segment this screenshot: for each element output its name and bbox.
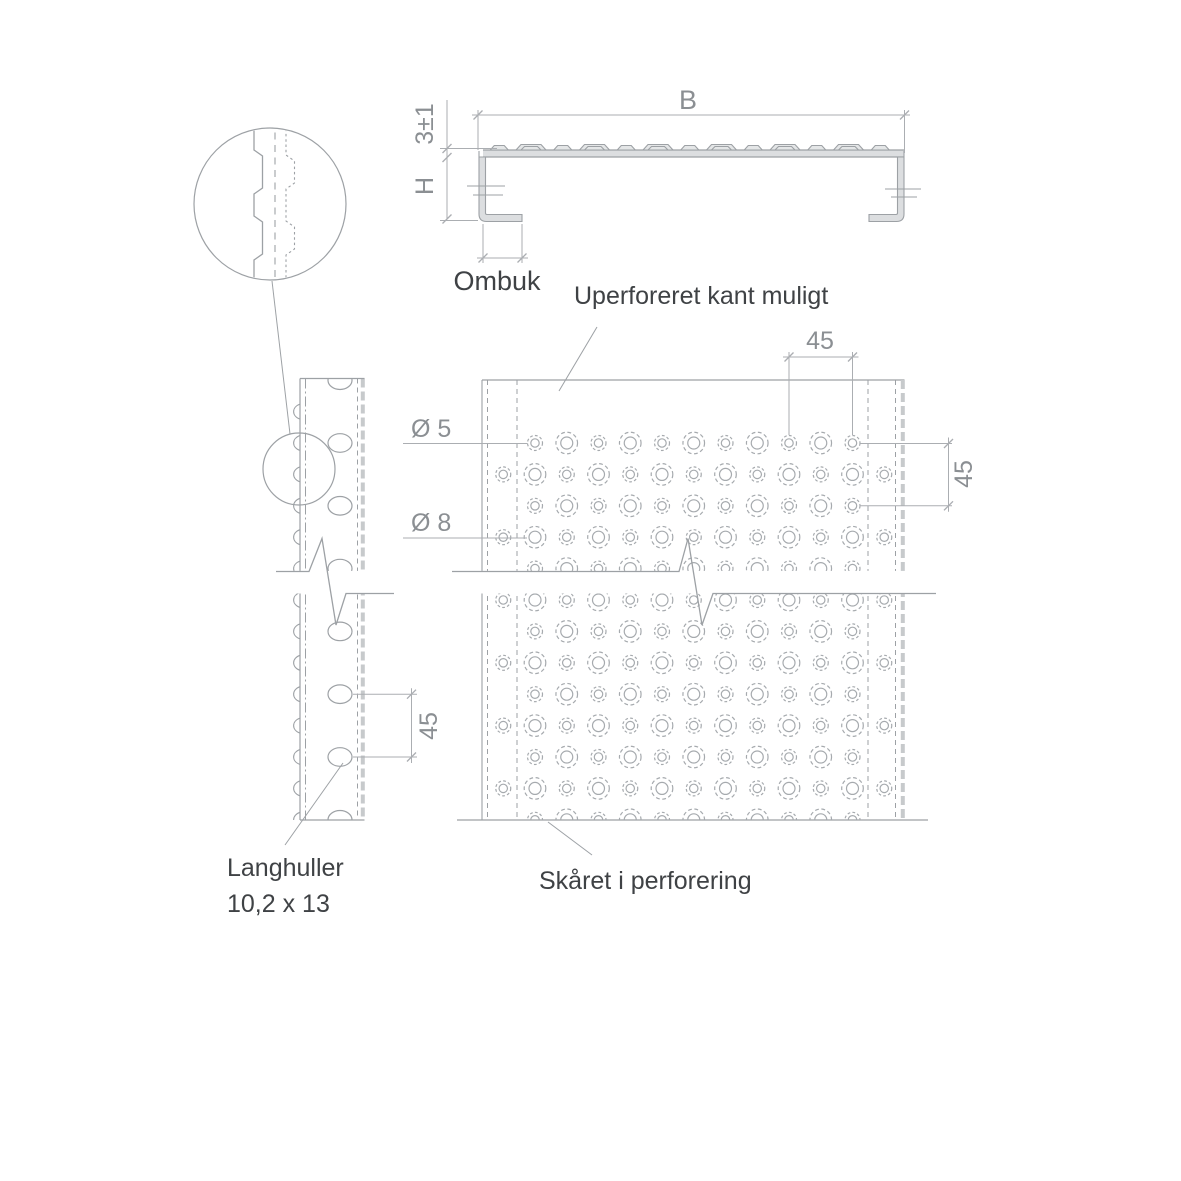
hole-small-ring [750, 530, 765, 545]
section-small-bump [681, 146, 699, 151]
hole-small-ring [591, 498, 606, 513]
hole-large [656, 531, 668, 543]
hole-small [753, 784, 761, 792]
detail-dotted-contour [286, 118, 295, 292]
hole-large [688, 751, 700, 763]
hole-small-ring [496, 530, 511, 545]
hole-large [593, 468, 605, 480]
hole-small-ring [750, 718, 765, 733]
strip-edge-bump [294, 718, 300, 733]
perforation-detail-view [194, 118, 346, 505]
hole-small-ring [782, 687, 797, 702]
hole-small-ring [813, 467, 828, 482]
hole-small-ring [623, 530, 638, 545]
section-hat-bump [707, 145, 737, 151]
hole-large-ring [619, 621, 641, 643]
hole-small [658, 502, 666, 510]
hole-small-ring [528, 750, 543, 765]
detail-profile-line [254, 118, 263, 292]
hole-large-ring [651, 526, 673, 548]
hole-large [720, 531, 732, 543]
hole-large [720, 468, 732, 480]
hole-large-ring [556, 621, 578, 643]
hole-large-ring [715, 464, 737, 486]
hole-small-ring [623, 467, 638, 482]
hole-small [690, 721, 698, 729]
slot-note-line2: 10,2 x 13 [227, 890, 330, 918]
hole-small-ring [559, 593, 574, 608]
hole-large-ring [588, 464, 610, 486]
hole-small [690, 533, 698, 541]
hole-small [531, 627, 539, 635]
hole-large [593, 720, 605, 732]
hole-small [817, 721, 825, 729]
hole-large [593, 531, 605, 543]
hole-small-ring [655, 436, 670, 451]
hole-large [561, 625, 573, 637]
hole-large-ring [746, 746, 768, 768]
hole-small-ring [528, 687, 543, 702]
hole-small [880, 533, 888, 541]
small-hole-dia-label: Ø 5 [411, 415, 451, 443]
hole-large [815, 625, 827, 637]
hole-large [593, 594, 605, 606]
slot-note-line1: Langhuller [227, 854, 344, 882]
hole-large-ring [619, 495, 641, 517]
strip-edge-bump [294, 404, 300, 419]
hole-small-ring [813, 593, 828, 608]
hole-large [783, 594, 795, 606]
hole-small [626, 721, 634, 729]
detail-leader [272, 281, 290, 434]
hole-large [783, 782, 795, 794]
hole-large-ring [746, 432, 768, 454]
hole-small-ring [782, 436, 797, 451]
hole-large [688, 625, 700, 637]
hole-small-ring [623, 655, 638, 670]
hole-small [594, 753, 602, 761]
hole-large [751, 751, 763, 763]
hole-large [529, 782, 541, 794]
hole-small [531, 502, 539, 510]
hole-large-ring [556, 432, 578, 454]
hole-large [783, 720, 795, 732]
hole-small-ring [655, 687, 670, 702]
hole-small [817, 470, 825, 478]
hole-small [626, 470, 634, 478]
hole-small-ring [782, 498, 797, 513]
hole-large [593, 782, 605, 794]
hole-small [531, 690, 539, 698]
hole-large [847, 782, 859, 794]
hole-small [499, 596, 507, 604]
hole-large [529, 468, 541, 480]
hole-large-ring [651, 464, 673, 486]
hole-large [656, 468, 668, 480]
hole-small [785, 753, 793, 761]
hole-large-ring [746, 683, 768, 705]
hole-small-ring [845, 624, 860, 639]
dim-label-H: H [411, 177, 439, 195]
hole-large [720, 657, 732, 669]
hole-small [880, 721, 888, 729]
hole-large [847, 720, 859, 732]
section-right-flange [869, 151, 904, 222]
slot-hole [328, 497, 352, 516]
hole-small [658, 627, 666, 635]
cut-note-leader [548, 822, 592, 855]
slot-note-leader [285, 763, 343, 845]
hole-small [563, 533, 571, 541]
hole-large-ring [810, 746, 832, 768]
hole-large-ring [556, 495, 578, 517]
hole-large [815, 437, 827, 449]
hole-large-ring [524, 778, 546, 800]
section-hat-bump [643, 145, 673, 151]
hole-large [624, 437, 636, 449]
hole-large [529, 531, 541, 543]
hole-large-ring [746, 621, 768, 643]
hole-large [593, 657, 605, 669]
hole-small-ring [591, 750, 606, 765]
hole-small-ring [750, 593, 765, 608]
hole-small [753, 596, 761, 604]
hole-small-ring [528, 498, 543, 513]
hole-large [688, 437, 700, 449]
hole-small [880, 659, 888, 667]
strip-edge-bump [294, 530, 300, 545]
hole-small-ring [718, 498, 733, 513]
hole-small-ring [623, 593, 638, 608]
hole-small [848, 502, 856, 510]
hole-small-ring [655, 750, 670, 765]
hole-small [594, 690, 602, 698]
strip-break-band [276, 571, 394, 594]
unperforated-leader [559, 327, 597, 391]
hole-large-ring [588, 652, 610, 674]
section-small-bump [490, 146, 508, 151]
hole-small-ring [750, 655, 765, 670]
hole-large [783, 531, 795, 543]
hole-small [690, 470, 698, 478]
hole-small [626, 659, 634, 667]
hole-small [817, 596, 825, 604]
hole-small-ring [496, 655, 511, 670]
dim-label-thickness: 3±1 [411, 103, 439, 145]
hole-small-ring [718, 436, 733, 451]
strip-edge-bump [294, 498, 300, 513]
hole-large-ring [683, 746, 705, 768]
hole-large-ring [683, 432, 705, 454]
hole-large-ring [715, 715, 737, 737]
hole-small-ring [559, 781, 574, 796]
unperforated-edge-label: Uperforeret kant muligt [574, 282, 828, 310]
hole-large [656, 657, 668, 669]
hole-small [594, 502, 602, 510]
hole-large-ring [842, 778, 864, 800]
hole-small [563, 470, 571, 478]
hole-small [563, 721, 571, 729]
profile-top-plate [483, 150, 904, 157]
hem-label: Ombuk [453, 266, 541, 296]
cross-section-view [467, 145, 921, 222]
hole-large-ring [810, 495, 832, 517]
hole-large-ring [842, 652, 864, 674]
hole-large-ring [619, 683, 641, 705]
hole-large-ring [619, 746, 641, 768]
pitch-top-label: 45 [806, 327, 834, 355]
hole-large-ring [778, 715, 800, 737]
hole-large-ring [778, 526, 800, 548]
hole-small [658, 753, 666, 761]
hole-small-ring [559, 530, 574, 545]
section-hat-bump [516, 145, 546, 151]
hole-large [624, 500, 636, 512]
hole-large-ring [715, 526, 737, 548]
hole-large [751, 688, 763, 700]
hole-small-ring [559, 718, 574, 733]
slot-hole [328, 622, 352, 641]
hole-large [815, 688, 827, 700]
hole-small-ring [686, 781, 701, 796]
hole-small-ring [877, 530, 892, 545]
hole-small [817, 784, 825, 792]
plate-holes [496, 432, 892, 830]
hole-small-ring [718, 687, 733, 702]
hole-small-ring [877, 718, 892, 733]
hole-small [848, 690, 856, 698]
hole-small-ring [528, 436, 543, 451]
hole-small [499, 784, 507, 792]
hole-large [815, 751, 827, 763]
hole-small [690, 596, 698, 604]
hole-small-ring [496, 467, 511, 482]
hole-small [880, 470, 888, 478]
hole-small-ring [623, 718, 638, 733]
hole-small [753, 470, 761, 478]
hole-small [563, 784, 571, 792]
hole-small-ring [877, 781, 892, 796]
hole-large-ring [842, 715, 864, 737]
slot-hole [328, 371, 352, 390]
hole-small [721, 502, 729, 510]
section-small-bump [808, 146, 826, 151]
hole-small [499, 721, 507, 729]
hole-large-ring [778, 464, 800, 486]
hole-small-ring [591, 436, 606, 451]
hole-small-ring [877, 593, 892, 608]
hole-small [563, 596, 571, 604]
hole-large [656, 720, 668, 732]
hole-small [785, 439, 793, 447]
pitch-right-label: 45 [950, 460, 978, 488]
hole-small-ring [813, 781, 828, 796]
hole-large [656, 782, 668, 794]
hole-large-ring [588, 778, 610, 800]
hole-small [499, 470, 507, 478]
detail-circle-small [263, 433, 335, 505]
hole-large [529, 594, 541, 606]
strip-edge-bump [294, 750, 300, 765]
hole-large-ring [524, 526, 546, 548]
hole-small-ring [591, 687, 606, 702]
detail-content [254, 118, 295, 292]
hole-large-ring [588, 715, 610, 737]
section-hat-bump [770, 145, 800, 151]
hole-small-ring [623, 781, 638, 796]
hole-small-ring [782, 624, 797, 639]
hole-small-ring [750, 781, 765, 796]
hole-large-ring [715, 778, 737, 800]
hole-small-ring [782, 750, 797, 765]
hole-small-ring [877, 467, 892, 482]
strip-edge-bump [294, 687, 300, 702]
hole-large [751, 437, 763, 449]
hole-small-ring [718, 750, 733, 765]
hole-small [594, 439, 602, 447]
hole-large [815, 500, 827, 512]
hole-small [785, 502, 793, 510]
cut-note-label: Skåret i perforering [539, 867, 752, 895]
hole-small [658, 690, 666, 698]
hole-large-ring [619, 432, 641, 454]
hole-small [753, 659, 761, 667]
hole-small [721, 439, 729, 447]
strip-edge-bump [294, 436, 300, 451]
hole-large-ring [524, 715, 546, 737]
hole-large [720, 594, 732, 606]
hole-small-ring [877, 655, 892, 670]
hole-large [561, 751, 573, 763]
hole-small [848, 439, 856, 447]
hole-large [688, 688, 700, 700]
hole-small [721, 627, 729, 635]
hole-small [817, 533, 825, 541]
hole-large [624, 625, 636, 637]
hole-small [658, 439, 666, 447]
section-hat-bump [580, 145, 610, 151]
hole-small [626, 596, 634, 604]
hole-large [624, 688, 636, 700]
hole-small-ring [655, 624, 670, 639]
hole-small-ring [813, 718, 828, 733]
hole-small-ring [686, 655, 701, 670]
hole-small-ring [750, 467, 765, 482]
slot-hole [328, 434, 352, 453]
hole-large-ring [524, 652, 546, 674]
hole-large-ring [556, 683, 578, 705]
hole-large-ring [524, 464, 546, 486]
edge-side-view [285, 371, 417, 845]
hole-small [880, 596, 888, 604]
hole-small-ring [591, 624, 606, 639]
hole-small [848, 627, 856, 635]
hole-small [753, 721, 761, 729]
hole-small-ring [845, 498, 860, 513]
large-hole-dia-label: Ø 8 [411, 509, 451, 537]
dim-label-B: B [679, 85, 697, 115]
strip-edge-bump [294, 593, 300, 608]
hole-large-ring [810, 432, 832, 454]
hole-small [753, 533, 761, 541]
hole-small-ring [845, 750, 860, 765]
hole-small [563, 659, 571, 667]
hole-large [847, 594, 859, 606]
strip-edge-bump [294, 781, 300, 796]
technical-drawing-svg: B 3±1 H Ombuk Uperforeret kant muligt Ø … [0, 0, 1181, 1181]
hole-small [626, 533, 634, 541]
hole-large [751, 625, 763, 637]
hole-small [817, 659, 825, 667]
hole-large [720, 720, 732, 732]
hole-large-ring [842, 464, 864, 486]
hole-small-ring [655, 498, 670, 513]
hole-small-ring [813, 655, 828, 670]
hole-large-ring [778, 778, 800, 800]
hole-small-ring [496, 593, 511, 608]
hole-large [847, 531, 859, 543]
hole-large [561, 500, 573, 512]
hole-small-ring [813, 530, 828, 545]
hole-large [847, 657, 859, 669]
hole-small-ring [559, 655, 574, 670]
hole-small [690, 784, 698, 792]
hole-large [751, 500, 763, 512]
hole-large-ring [683, 683, 705, 705]
hole-large-ring [588, 526, 610, 548]
hole-large-ring [651, 778, 673, 800]
hole-small-ring [845, 436, 860, 451]
hole-small-ring [845, 687, 860, 702]
hole-small [594, 627, 602, 635]
hole-small-ring [686, 467, 701, 482]
hole-large-ring [810, 621, 832, 643]
hole-large-ring [651, 652, 673, 674]
hole-large [847, 468, 859, 480]
hole-small [531, 439, 539, 447]
slot-hole [328, 685, 352, 704]
strip-edge-bump [294, 624, 300, 639]
slot-hole [328, 748, 352, 767]
hole-large [783, 657, 795, 669]
hole-large [688, 500, 700, 512]
hole-small-ring [559, 467, 574, 482]
detail-circle-large [194, 128, 346, 280]
hole-small-ring [496, 718, 511, 733]
hole-large-ring [746, 495, 768, 517]
section-small-bump [744, 146, 762, 151]
hole-small [531, 753, 539, 761]
hole-large-ring [683, 495, 705, 517]
section-hat-bump [834, 145, 864, 151]
hole-large-ring [556, 746, 578, 768]
hole-small [690, 659, 698, 667]
hole-large [656, 594, 668, 606]
hole-large-ring [651, 715, 673, 737]
hole-large-ring [842, 526, 864, 548]
hole-large [529, 657, 541, 669]
hole-small [721, 753, 729, 761]
hole-small [785, 627, 793, 635]
hole-small [721, 690, 729, 698]
strip-edge-bump [294, 467, 300, 482]
hole-small-ring [718, 624, 733, 639]
hole-small [626, 784, 634, 792]
break-lines [276, 539, 938, 626]
dimension-lines [440, 100, 910, 263]
hole-small-ring [528, 624, 543, 639]
hole-large-ring [810, 683, 832, 705]
